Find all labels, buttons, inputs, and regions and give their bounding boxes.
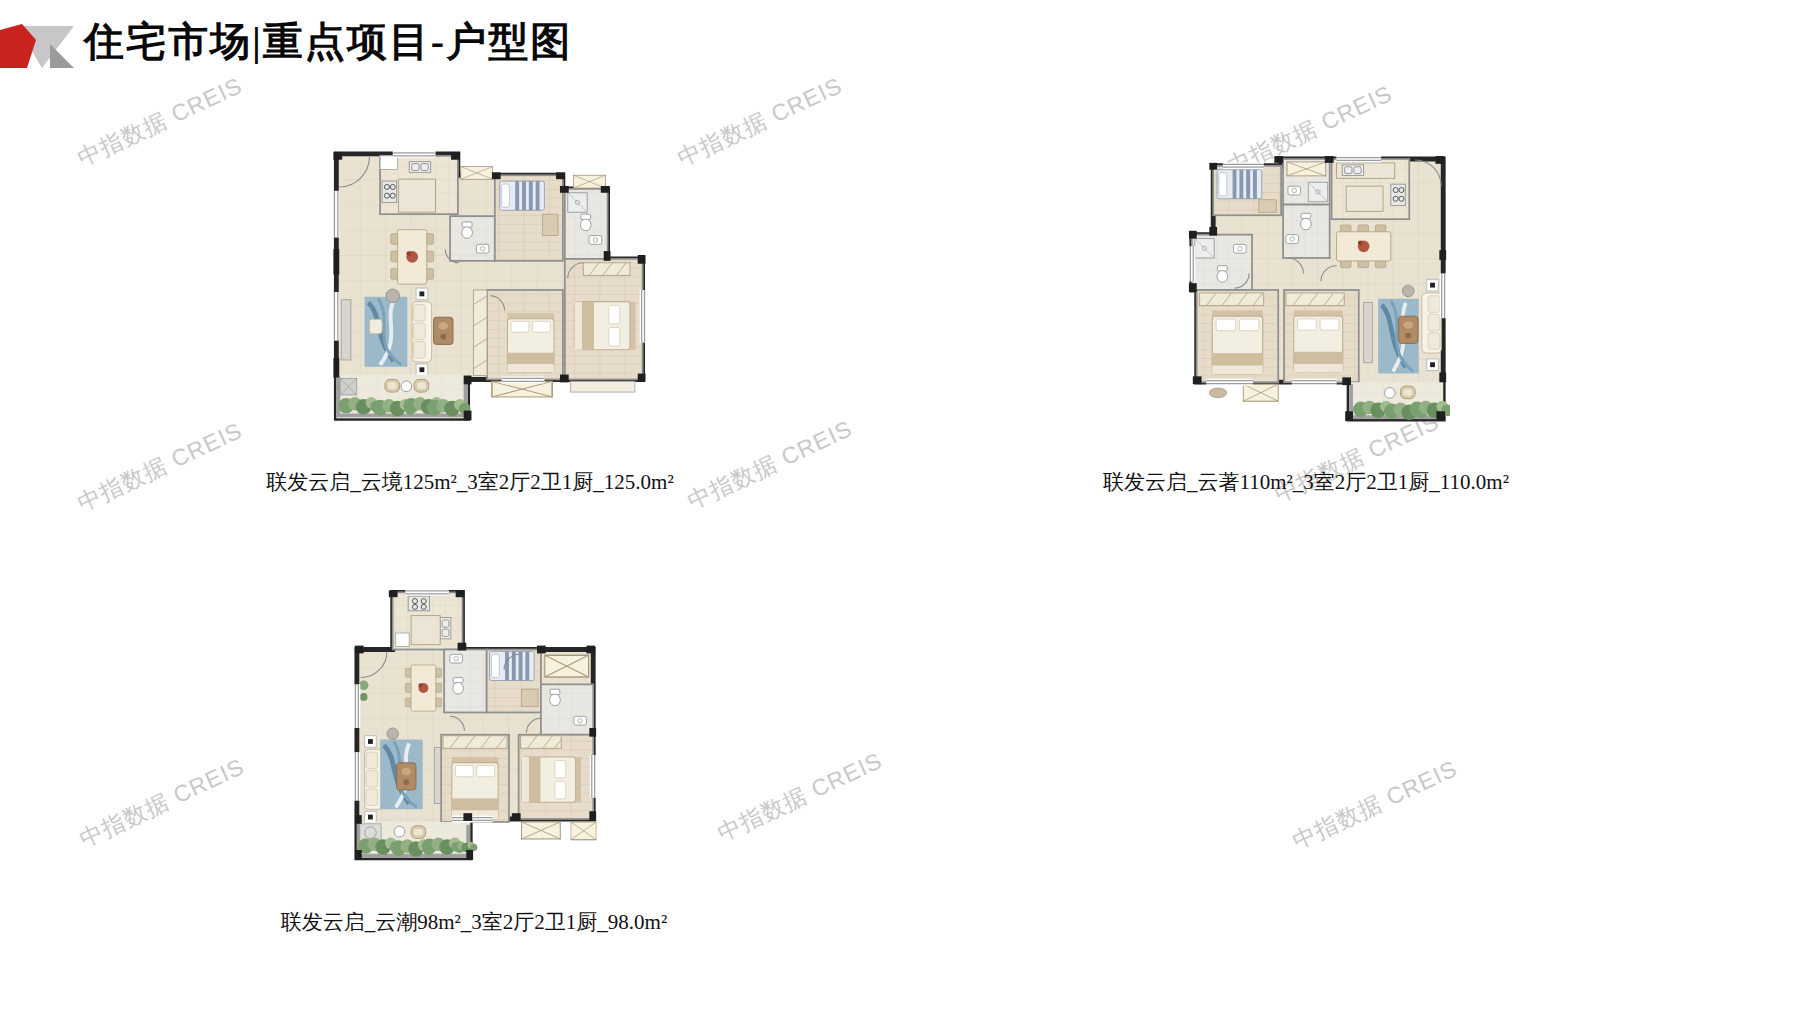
- bedroom-right: [519, 735, 594, 819]
- balcony: [1349, 382, 1450, 420]
- kitchen: [393, 592, 463, 649]
- dining: [1336, 225, 1390, 268]
- floor-plan-110-image: [1187, 153, 1450, 427]
- bedroom-2: [473, 290, 562, 379]
- floor-plan-125-image: [330, 150, 647, 430]
- bathroom: [450, 216, 495, 261]
- plan-caption-125: 联发云启_云境125m²_3室2厅2卫1厨_125.0m²: [230, 468, 710, 496]
- watermark: 中指数据 CREIS: [74, 751, 249, 855]
- slide-header: 住宅市场|重点项目-户型图: [0, 0, 1797, 80]
- bedroom-small: [1213, 166, 1281, 215]
- plan-caption-110: 联发云启_云著110m²_3室2厅2卫1厨_110.0m²: [1066, 468, 1546, 496]
- balcony: [336, 375, 470, 419]
- bathroom-2: [1192, 235, 1252, 290]
- watermark: 中指数据 CREIS: [72, 70, 247, 174]
- watermark: 中指数据 CREIS: [1287, 753, 1462, 857]
- watermark: 中指数据 CREIS: [682, 413, 857, 517]
- floor-plan-98-image: [353, 588, 600, 865]
- bathroom-2: [565, 189, 608, 259]
- watermark: 中指数据 CREIS: [672, 70, 847, 174]
- plan-caption-98: 联发云启_云潮98m²_3室2厅2卫1厨_98.0m²: [234, 908, 714, 936]
- bathroom: [444, 649, 487, 712]
- bedroom-small: [487, 649, 541, 712]
- watermark: 中指数据 CREIS: [712, 745, 887, 849]
- kitchen: [1332, 159, 1410, 219]
- bedroom-center: [1284, 290, 1359, 382]
- page-title: 住宅市场|重点项目-户型图: [84, 14, 572, 69]
- bedroom-master: [565, 259, 643, 380]
- bathroom-2: [541, 655, 593, 734]
- watermark: 中指数据 CREIS: [72, 415, 247, 519]
- creis-logo-icon: [0, 24, 76, 69]
- bathroom-3: [1283, 205, 1330, 258]
- kitchen: [380, 156, 458, 214]
- bedroom-small: [495, 175, 563, 261]
- bedroom-left: [1197, 290, 1279, 382]
- bathroom: [1283, 159, 1330, 205]
- balcony: [357, 822, 477, 858]
- bedroom-center: [441, 735, 509, 822]
